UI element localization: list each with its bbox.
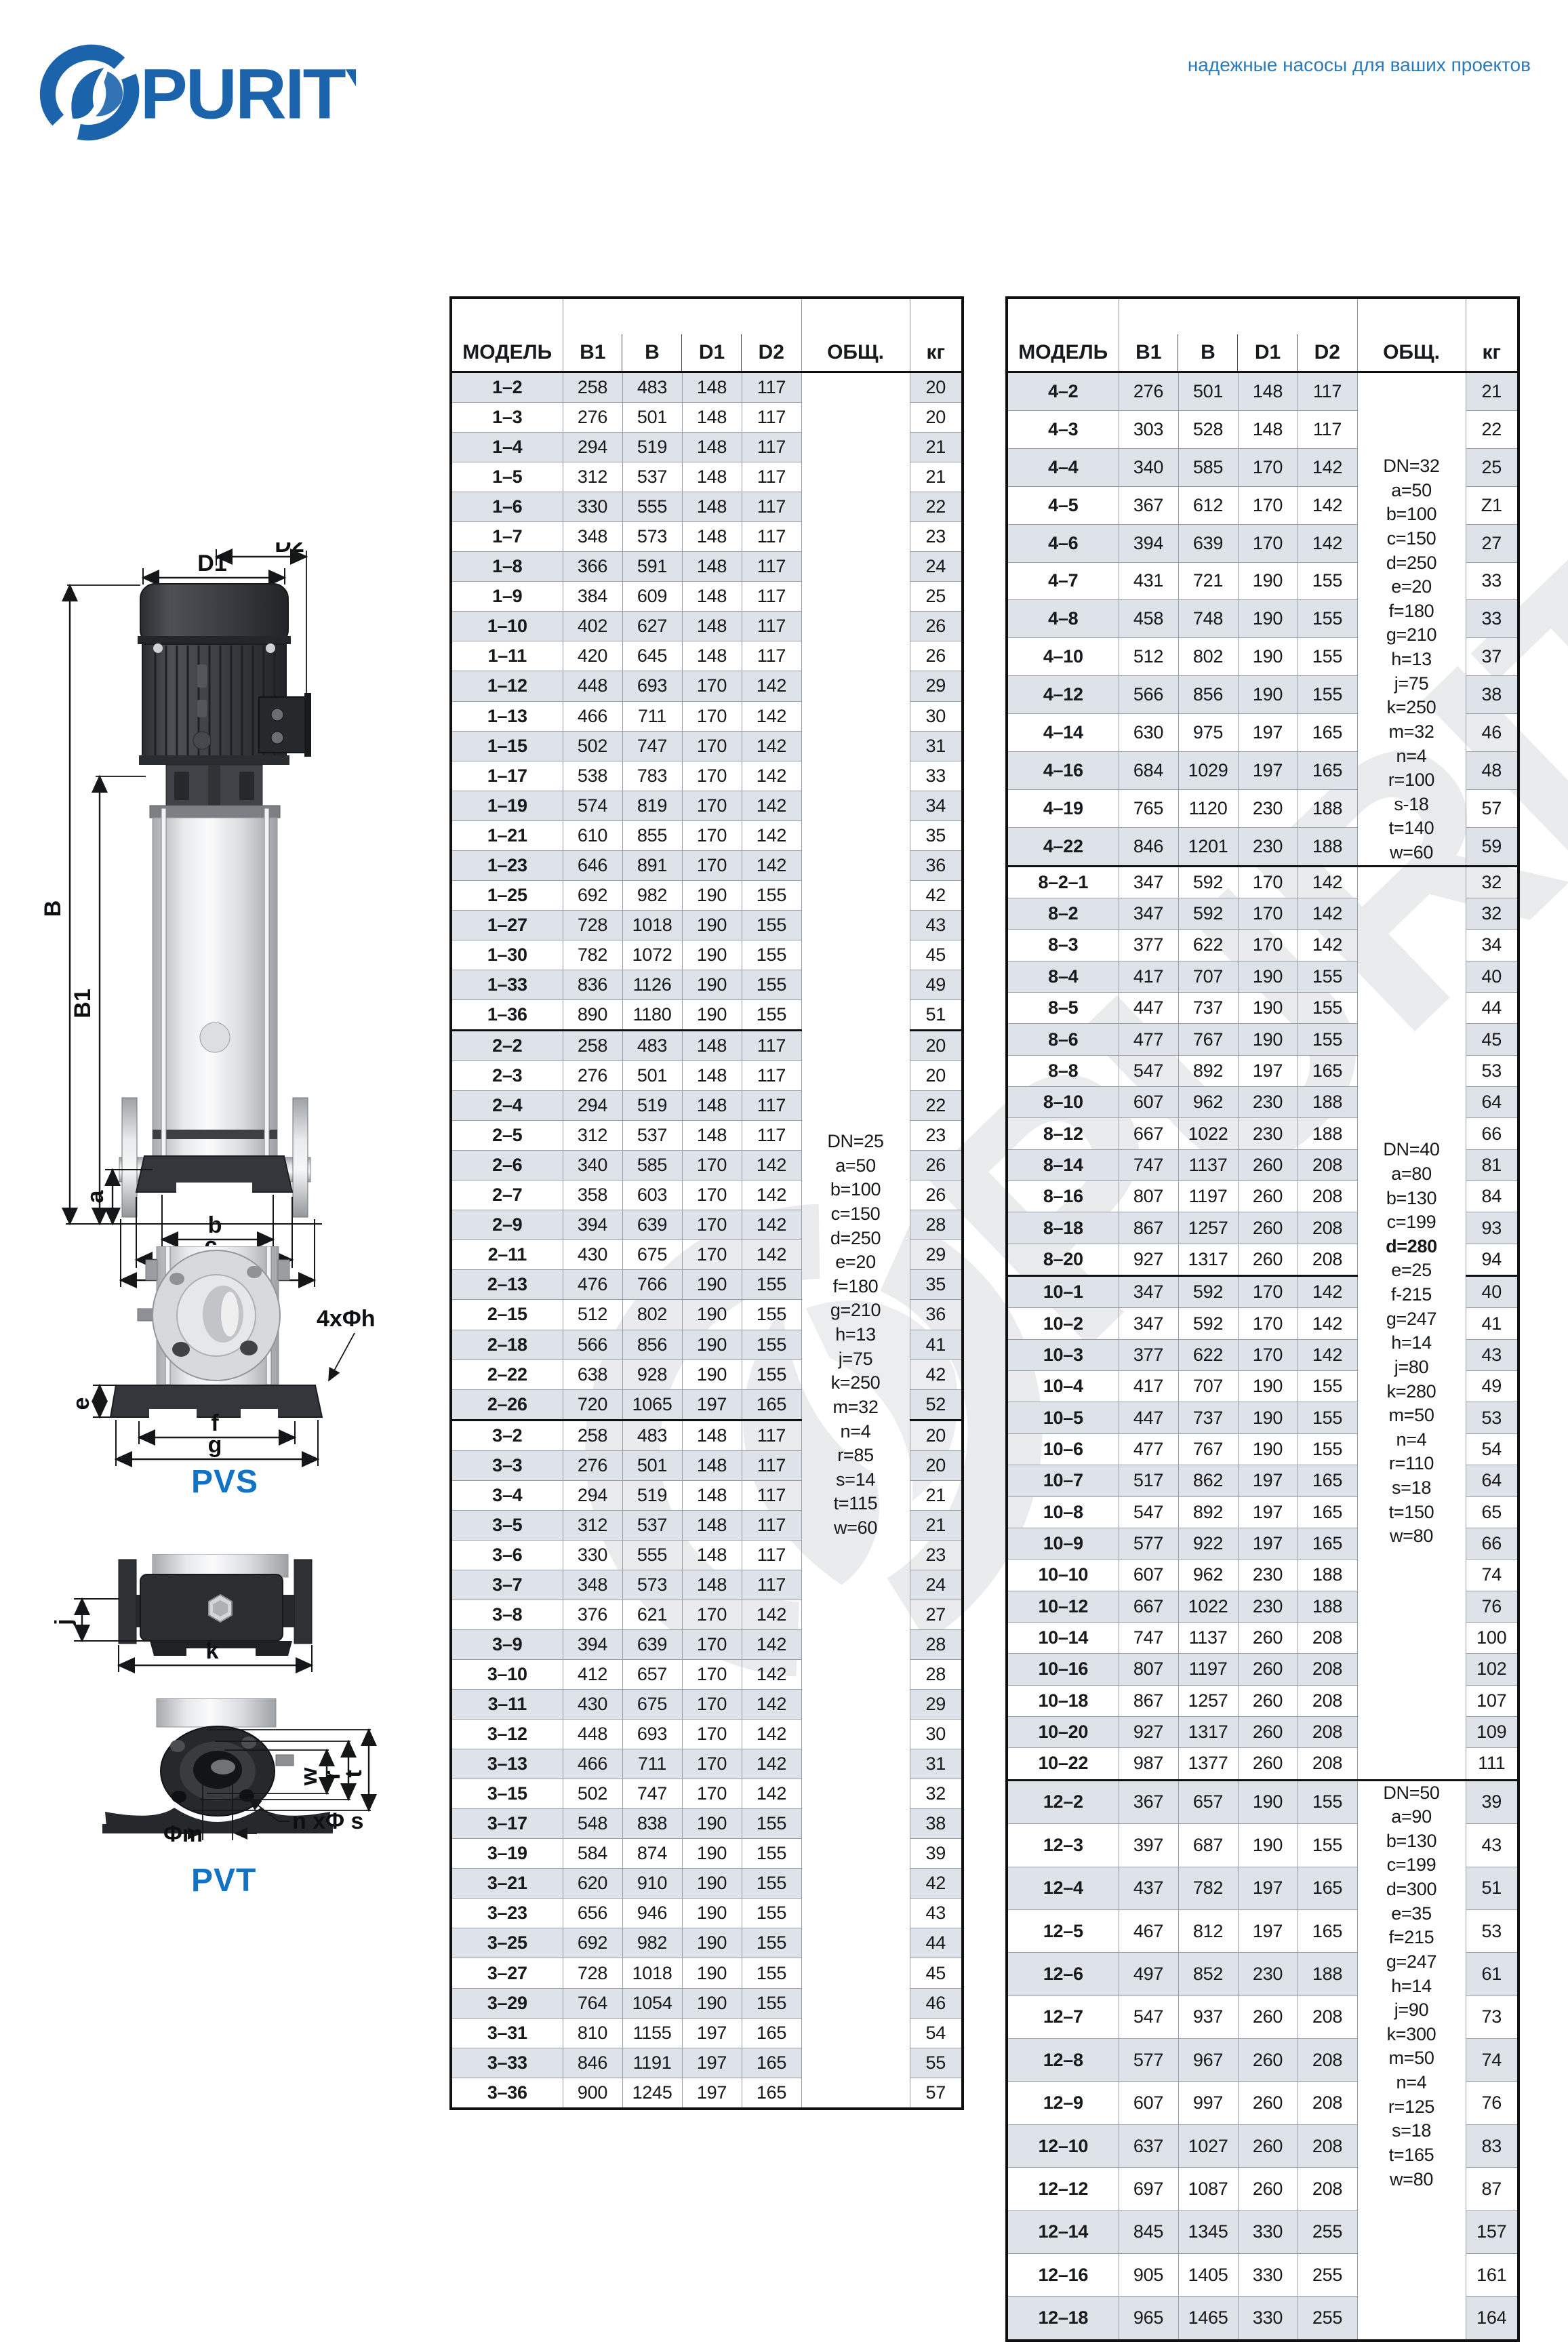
value-cell: 148 <box>682 1450 742 1480</box>
value-cell: 148 <box>682 522 742 552</box>
kg-cell: 81 <box>1466 1149 1519 1180</box>
value-cell: 1087 <box>1178 2168 1238 2210</box>
value-cell: 142 <box>742 701 801 731</box>
model-cell: 12–16 <box>1007 2253 1119 2296</box>
note-line: a=90 <box>1358 1805 1466 1829</box>
model-cell: 1–11 <box>451 641 563 671</box>
value-cell: 537 <box>622 1121 682 1151</box>
value-cell: 721 <box>1178 562 1238 600</box>
value-cell: 965 <box>1119 2297 1178 2341</box>
value-cell: 448 <box>563 1720 622 1749</box>
kg-cell: 21 <box>910 433 963 462</box>
model-cell: 4–6 <box>1007 524 1119 562</box>
value-cell: 276 <box>1119 372 1178 411</box>
column-header-b1: B1 <box>1119 298 1178 372</box>
note-line: c=150 <box>1358 527 1466 551</box>
value-cell: 592 <box>1178 898 1238 929</box>
value-cell: 417 <box>1119 961 1178 992</box>
value-cell: 155 <box>1298 1824 1357 1867</box>
value-cell: 892 <box>1178 1496 1238 1528</box>
value-cell: 728 <box>563 1958 622 1988</box>
model-cell: 10–22 <box>1007 1748 1119 1780</box>
value-cell: 117 <box>1298 372 1357 411</box>
value-cell: 946 <box>622 1899 682 1928</box>
value-cell: 855 <box>622 820 682 850</box>
value-cell: 142 <box>742 1629 801 1659</box>
value-cell: 190 <box>682 1330 742 1359</box>
value-cell: 170 <box>682 1210 742 1240</box>
value-cell: 188 <box>1298 1591 1357 1622</box>
value-cell: 190 <box>682 999 742 1030</box>
value-cell: 197 <box>1238 1528 1298 1559</box>
model-cell: 10–1 <box>1007 1276 1119 1308</box>
kg-cell: 40 <box>1466 961 1519 992</box>
value-cell: 1137 <box>1178 1622 1238 1653</box>
kg-cell: 74 <box>1466 2039 1519 2082</box>
model-cell: 12–18 <box>1007 2297 1119 2341</box>
kg-cell: 23 <box>910 1121 963 1151</box>
value-cell: 347 <box>1119 898 1178 929</box>
model-cell: 3–17 <box>451 1809 563 1839</box>
value-cell: 260 <box>1238 1149 1298 1180</box>
note-line: c=150 <box>802 1202 910 1227</box>
value-cell: 148 <box>682 1510 742 1540</box>
kg-cell: 20 <box>910 1420 963 1450</box>
model-cell: 12–14 <box>1007 2210 1119 2253</box>
kg-cell: 83 <box>1466 2124 1519 2167</box>
value-cell: 537 <box>622 462 682 492</box>
value-cell: 190 <box>682 1300 742 1330</box>
value-cell: 577 <box>1119 1528 1178 1559</box>
value-cell: 170 <box>682 1749 742 1779</box>
value-cell: 622 <box>1178 1339 1238 1370</box>
note-line: e=35 <box>1358 1902 1466 1926</box>
kg-cell: 24 <box>910 1570 963 1600</box>
model-cell: 3–27 <box>451 1958 563 1988</box>
value-cell: 117 <box>742 1510 801 1540</box>
value-cell: 155 <box>1298 993 1357 1024</box>
pvs-side-diagram: D2 D1 B B1 <box>37 542 454 1288</box>
note-line: DN=32 <box>1358 454 1466 479</box>
kg-cell: 33 <box>910 761 963 791</box>
value-cell: 142 <box>1298 448 1357 486</box>
dim-label-w: w <box>296 1767 322 1786</box>
model-cell: 3–11 <box>451 1690 563 1720</box>
model-cell: 10–2 <box>1007 1308 1119 1339</box>
model-cell: 2–6 <box>451 1151 563 1180</box>
value-cell: 476 <box>563 1270 622 1300</box>
value-cell: 190 <box>682 1869 742 1899</box>
value-cell: 646 <box>563 850 622 880</box>
model-cell: 2–11 <box>451 1240 563 1270</box>
model-cell: 3–5 <box>451 1510 563 1540</box>
model-cell: 4–5 <box>1007 486 1119 524</box>
value-cell: 190 <box>1238 1371 1298 1402</box>
value-cell: 170 <box>682 1720 742 1749</box>
value-cell: 737 <box>1178 1402 1238 1433</box>
model-cell: 2–22 <box>451 1359 563 1389</box>
value-cell: 675 <box>622 1690 682 1720</box>
value-cell: 155 <box>742 1809 801 1839</box>
kg-cell: 28 <box>910 1210 963 1240</box>
value-cell: 155 <box>742 1869 801 1899</box>
value-cell: 937 <box>1178 1996 1238 2038</box>
kg-cell: 21 <box>910 1510 963 1540</box>
notes-cell: DN=40a=80b=130c=199d=280e=25f-215g=247h=… <box>1357 866 1466 1780</box>
value-cell: 927 <box>1119 1716 1178 1747</box>
value-cell: 190 <box>682 1359 742 1389</box>
value-cell: 519 <box>622 1480 682 1510</box>
value-cell: 807 <box>1119 1181 1178 1212</box>
model-cell: 12–2 <box>1007 1780 1119 1824</box>
value-cell: 437 <box>1119 1867 1178 1909</box>
value-cell: 155 <box>1298 1433 1357 1465</box>
value-cell: 190 <box>682 1988 742 2018</box>
kg-cell: 94 <box>1466 1244 1519 1275</box>
value-cell: 707 <box>1178 961 1238 992</box>
value-cell: 142 <box>1298 486 1357 524</box>
value-cell: 170 <box>682 791 742 820</box>
note-line: d=300 <box>1358 1878 1466 1902</box>
column-header-kg: кг <box>1466 298 1519 372</box>
value-cell: 155 <box>742 940 801 970</box>
model-cell: 2–4 <box>451 1091 563 1121</box>
value-cell: 148 <box>682 1031 742 1061</box>
kg-cell: 30 <box>910 701 963 731</box>
kg-cell: 24 <box>910 552 963 582</box>
value-cell: 577 <box>1119 2039 1178 2082</box>
value-cell: 155 <box>742 1330 801 1359</box>
kg-cell: 44 <box>1466 993 1519 1024</box>
value-cell: 555 <box>622 1540 682 1570</box>
note-line: t=165 <box>1358 2143 1466 2168</box>
kg-cell: 20 <box>910 372 963 403</box>
value-cell: 1180 <box>622 999 682 1030</box>
value-cell: 501 <box>1178 372 1238 411</box>
value-cell: 155 <box>742 910 801 940</box>
value-cell: 190 <box>682 970 742 999</box>
value-cell: 148 <box>682 403 742 433</box>
value-cell: 142 <box>742 1660 801 1690</box>
value-cell: 962 <box>1178 1560 1238 1591</box>
value-cell: 170 <box>1238 866 1298 898</box>
value-cell: 188 <box>1298 1560 1357 1591</box>
value-cell: 170 <box>682 701 742 731</box>
value-cell: 117 <box>742 552 801 582</box>
kg-cell: 29 <box>910 1690 963 1720</box>
value-cell: 767 <box>1178 1024 1238 1055</box>
model-cell: 3–19 <box>451 1839 563 1869</box>
value-cell: 838 <box>622 1809 682 1839</box>
value-cell: 197 <box>1238 1867 1298 1909</box>
value-cell: 190 <box>1238 993 1298 1024</box>
value-cell: 1405 <box>1178 2253 1238 2296</box>
value-cell: 165 <box>1298 1465 1357 1496</box>
value-cell: 148 <box>682 582 742 612</box>
value-cell: 148 <box>682 1091 742 1121</box>
model-cell: 4–7 <box>1007 562 1119 600</box>
value-cell: 846 <box>563 2048 622 2078</box>
kg-cell: 26 <box>910 1180 963 1210</box>
value-cell: 260 <box>1238 1654 1298 1685</box>
value-cell: 566 <box>1119 676 1178 714</box>
value-cell: 1377 <box>1178 1748 1238 1780</box>
value-cell: 117 <box>742 372 801 403</box>
value-cell: 190 <box>1238 676 1298 714</box>
value-cell: 1054 <box>622 1988 682 2018</box>
value-cell: 574 <box>563 791 622 820</box>
value-cell: 260 <box>1238 2039 1298 2082</box>
value-cell: 142 <box>742 761 801 791</box>
value-cell: 208 <box>1298 1716 1357 1747</box>
model-cell: 1–6 <box>451 492 563 522</box>
value-cell: 584 <box>563 1839 622 1869</box>
model-cell: 1–30 <box>451 940 563 970</box>
value-cell: 1155 <box>622 2018 682 2048</box>
kg-cell: 57 <box>1466 789 1519 827</box>
kg-cell: 100 <box>1466 1622 1519 1653</box>
value-cell: 519 <box>622 433 682 462</box>
kg-cell: 164 <box>1466 2297 1519 2341</box>
value-cell: 230 <box>1238 1591 1298 1622</box>
model-cell: 3–3 <box>451 1450 563 1480</box>
value-cell: 573 <box>622 1570 682 1600</box>
value-cell: 737 <box>1178 993 1238 1024</box>
value-cell: 148 <box>682 1540 742 1570</box>
value-cell: 117 <box>742 1540 801 1570</box>
value-cell: 1201 <box>1178 827 1238 866</box>
model-cell: 1–13 <box>451 701 563 731</box>
value-cell: 630 <box>1119 713 1178 751</box>
value-cell: 117 <box>742 403 801 433</box>
value-cell: 330 <box>1238 2210 1298 2253</box>
value-cell: 148 <box>682 552 742 582</box>
value-cell: 667 <box>1119 1591 1178 1622</box>
tagline: надежные насосы для ваших проектов <box>1188 54 1531 76</box>
brand-wordmark: PURITY <box>140 55 356 134</box>
kg-cell: 21 <box>1466 372 1519 411</box>
model-cell: 1–21 <box>451 820 563 850</box>
value-cell: 967 <box>1178 2039 1238 2082</box>
value-cell: 607 <box>1119 1087 1178 1118</box>
model-cell: 8–6 <box>1007 1024 1119 1055</box>
value-cell: 170 <box>682 731 742 761</box>
value-cell: 255 <box>1298 2253 1357 2296</box>
value-cell: 874 <box>622 1839 682 1869</box>
model-cell: 1–8 <box>451 552 563 582</box>
dim-label-t: t <box>341 1770 367 1777</box>
kg-cell: 35 <box>910 1270 963 1300</box>
kg-cell: 32 <box>910 1779 963 1809</box>
value-cell: 155 <box>742 1928 801 1958</box>
value-cell: 170 <box>682 1180 742 1210</box>
value-cell: 512 <box>1119 638 1178 676</box>
value-cell: 402 <box>563 612 622 641</box>
note-line: g=247 <box>1358 1950 1466 1974</box>
kg-cell: 102 <box>1466 1654 1519 1685</box>
model-cell: 10–9 <box>1007 1528 1119 1559</box>
pvs-label: PVS <box>191 1463 258 1501</box>
note-line: t=140 <box>1358 816 1466 841</box>
note-line: n=4 <box>1358 2071 1466 2095</box>
value-cell: 607 <box>1119 1560 1178 1591</box>
note-line: w=80 <box>1358 1524 1466 1549</box>
model-cell: 8–4 <box>1007 961 1119 992</box>
value-cell: 720 <box>563 1389 622 1420</box>
model-cell: 3–10 <box>451 1660 563 1690</box>
value-cell: 142 <box>742 731 801 761</box>
value-cell: 764 <box>563 1988 622 2018</box>
value-cell: 190 <box>682 910 742 940</box>
value-cell: 927 <box>1119 1244 1178 1275</box>
model-cell: 1–12 <box>451 671 563 701</box>
note-line: r=85 <box>802 1444 910 1468</box>
model-cell: 10–12 <box>1007 1591 1119 1622</box>
model-cell: 10–6 <box>1007 1433 1119 1465</box>
value-cell: 340 <box>563 1151 622 1180</box>
value-cell: 117 <box>742 1450 801 1480</box>
model-cell: 2–7 <box>451 1180 563 1210</box>
value-cell: 190 <box>1238 600 1298 638</box>
value-cell: 190 <box>682 880 742 910</box>
value-cell: 190 <box>682 1958 742 1988</box>
notes-cell: DN=50a=90b=130c=199d=300e=35f=215g=247h=… <box>1357 1780 1466 2341</box>
value-cell: 376 <box>563 1600 622 1629</box>
note-line: h=13 <box>1358 648 1466 672</box>
value-cell: 519 <box>622 1091 682 1121</box>
value-cell: 377 <box>1119 1339 1178 1370</box>
value-cell: 197 <box>1238 1496 1298 1528</box>
kg-cell: 39 <box>1466 1780 1519 1824</box>
dim-label-b1: B1 <box>70 989 96 1018</box>
value-cell: 260 <box>1238 1212 1298 1244</box>
value-cell: 155 <box>742 1988 801 2018</box>
value-cell: 1022 <box>1178 1118 1238 1149</box>
value-cell: 477 <box>1119 1433 1178 1465</box>
value-cell: 190 <box>682 1839 742 1869</box>
value-cell: 155 <box>1298 1402 1357 1433</box>
kg-cell: 34 <box>1466 930 1519 961</box>
value-cell: 637 <box>1119 2124 1178 2167</box>
note-line: d=250 <box>802 1227 910 1251</box>
model-cell: 3–15 <box>451 1779 563 1809</box>
value-cell: 155 <box>1298 638 1357 676</box>
kg-cell: 20 <box>910 1031 963 1061</box>
value-cell: 188 <box>1298 1087 1357 1118</box>
value-cell: 165 <box>1298 713 1357 751</box>
value-cell: 431 <box>1119 562 1178 600</box>
value-cell: 417 <box>1119 1371 1178 1402</box>
value-cell: 142 <box>742 1690 801 1720</box>
value-cell: 190 <box>1238 638 1298 676</box>
kg-cell: 35 <box>910 820 963 850</box>
kg-cell: 30 <box>910 1720 963 1749</box>
value-cell: 620 <box>563 1869 622 1899</box>
value-cell: 170 <box>682 1779 742 1809</box>
note-line: s=18 <box>1358 1476 1466 1501</box>
value-cell: 155 <box>1298 562 1357 600</box>
value-cell: 684 <box>1119 751 1178 789</box>
value-cell: 928 <box>622 1359 682 1389</box>
value-cell: 312 <box>563 1121 622 1151</box>
value-cell: 258 <box>563 1420 622 1450</box>
value-cell: 142 <box>742 1600 801 1629</box>
model-cell: 2–9 <box>451 1210 563 1240</box>
value-cell: 170 <box>682 1151 742 1180</box>
note-line: e=20 <box>802 1250 910 1275</box>
kg-cell: 26 <box>910 612 963 641</box>
value-cell: 170 <box>682 820 742 850</box>
kg-cell: 42 <box>910 880 963 910</box>
note-line: m=32 <box>1358 720 1466 745</box>
column-header-b: B <box>622 298 682 372</box>
value-cell: 497 <box>1119 1953 1178 1996</box>
kg-cell: 28 <box>910 1660 963 1690</box>
value-cell: 905 <box>1119 2253 1178 2296</box>
value-cell: 312 <box>563 462 622 492</box>
value-cell: 707 <box>1178 1371 1238 1402</box>
note-line: f-215 <box>1358 1283 1466 1307</box>
value-cell: 555 <box>622 492 682 522</box>
model-cell: 12–6 <box>1007 1953 1119 1996</box>
model-cell: 3–13 <box>451 1749 563 1779</box>
value-cell: 890 <box>563 999 622 1030</box>
kg-cell: 59 <box>1466 827 1519 866</box>
value-cell: 142 <box>742 1749 801 1779</box>
model-cell: 3–12 <box>451 1720 563 1749</box>
value-cell: 208 <box>1298 2168 1357 2210</box>
value-cell: 765 <box>1119 789 1178 827</box>
value-cell: 208 <box>1298 2082 1357 2124</box>
kg-cell: 46 <box>910 1988 963 2018</box>
value-cell: 384 <box>563 582 622 612</box>
note-line: c=199 <box>1358 1853 1466 1878</box>
value-cell: 856 <box>1178 676 1238 714</box>
value-cell: 358 <box>563 1180 622 1210</box>
value-cell: 148 <box>682 612 742 641</box>
value-cell: 197 <box>682 2048 742 2078</box>
value-cell: 466 <box>563 701 622 731</box>
note-line: g=210 <box>1358 623 1466 648</box>
value-cell: 348 <box>563 522 622 552</box>
value-cell: 312 <box>563 1510 622 1540</box>
note-line: b=130 <box>1358 1829 1466 1854</box>
value-cell: 348 <box>563 1570 622 1600</box>
value-cell: 208 <box>1298 1149 1357 1180</box>
value-cell: 148 <box>1238 411 1298 449</box>
value-cell: 330 <box>563 492 622 522</box>
value-cell: 155 <box>742 1300 801 1330</box>
note-line: h=13 <box>802 1323 910 1347</box>
value-cell: 155 <box>742 970 801 999</box>
value-cell: 208 <box>1298 2039 1357 2082</box>
kg-cell: 42 <box>910 1359 963 1389</box>
kg-cell: 43 <box>1466 1824 1519 1867</box>
model-cell: 4–19 <box>1007 789 1119 827</box>
kg-cell: 51 <box>1466 1867 1519 1909</box>
value-cell: 165 <box>1298 1867 1357 1909</box>
value-cell: 1018 <box>622 910 682 940</box>
value-cell: 170 <box>682 1690 742 1720</box>
dim-label-n-phi-s: n xΦ s <box>292 1808 363 1834</box>
model-cell: 1–25 <box>451 880 563 910</box>
value-cell: 466 <box>563 1749 622 1779</box>
dim-label-phi-m: Φm <box>163 1821 203 1847</box>
kg-cell: 36 <box>910 1300 963 1330</box>
kg-cell: 157 <box>1466 2210 1519 2253</box>
value-cell: 190 <box>1238 1024 1298 1055</box>
column-header-kg: кг <box>910 298 963 372</box>
